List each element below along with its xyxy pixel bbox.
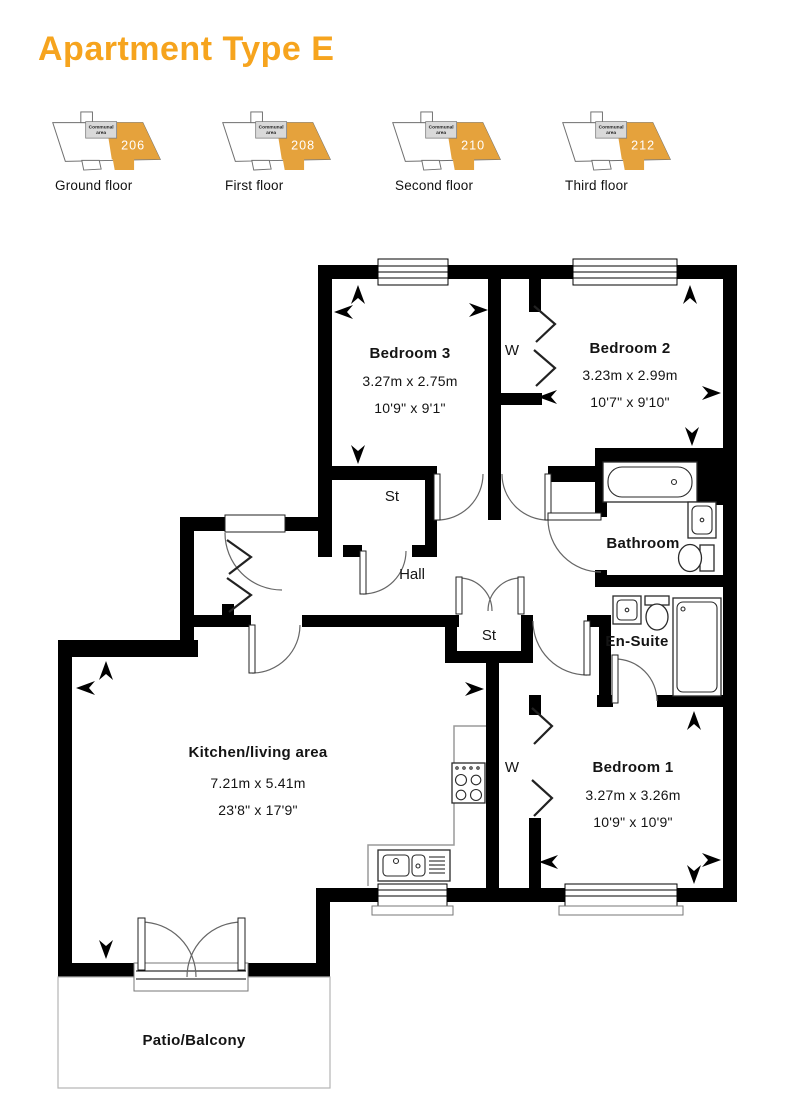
window-bedroom3 — [378, 259, 448, 285]
entry-closet-doors — [227, 540, 251, 612]
dimension-arrows-bedroom2 — [538, 285, 721, 446]
door-bathroom — [548, 513, 601, 572]
wardrobe-doors-bedroom1 — [532, 708, 552, 816]
room-label-kitchen: Kitchen/living area 7.21m x 5.41m 23'8" … — [188, 744, 327, 818]
kitchen-name: Kitchen/living area — [188, 744, 327, 761]
storage2-label: St — [482, 627, 497, 644]
entry-door — [225, 515, 285, 590]
bedroom2-imperial: 10'7" x 9'10" — [590, 394, 669, 410]
hall-label: Hall — [399, 566, 425, 583]
patio-label: Patio/Balcony — [142, 1032, 245, 1049]
window-bedroom1 — [559, 884, 683, 915]
bedroom1-imperial: 10'9" x 10'9" — [593, 814, 672, 830]
bedroom2-name: Bedroom 2 — [589, 340, 670, 357]
ensuite-label: En-Suite — [605, 633, 668, 650]
room-label-bedroom1: Bedroom 1 3.27m x 3.26m 10'9" x 10'9" — [585, 759, 680, 830]
bedroom3-metric: 3.27m x 2.75m — [362, 373, 457, 389]
patio-doors — [134, 918, 248, 991]
kitchen-hob — [452, 763, 485, 803]
bathroom-label: Bathroom — [606, 535, 679, 552]
door-kitchen — [249, 625, 300, 673]
floorplan: Bedroom 3 3.27m x 2.75m 10'9" x 9'1" W B… — [0, 0, 800, 1120]
window-bedroom2 — [573, 259, 677, 285]
bedroom3-name: Bedroom 3 — [369, 345, 450, 362]
wardrobe-bedroom1-label: W — [505, 759, 520, 776]
ensuite-sink — [613, 596, 641, 624]
door-storage2-double — [456, 577, 524, 614]
storage1-label: St — [385, 488, 400, 505]
bedroom2-metric: 3.23m x 2.99m — [582, 367, 677, 383]
kitchen-sink — [378, 850, 450, 881]
kitchen-metric: 7.21m x 5.41m — [210, 775, 305, 791]
wardrobe-bedroom2-label: W — [505, 342, 520, 359]
bathroom-toilet — [679, 545, 715, 572]
kitchen-imperial: 23'8" x 17'9" — [218, 802, 297, 818]
ensuite-shower — [673, 598, 721, 696]
bathroom-sink — [688, 502, 716, 538]
room-label-bedroom3: Bedroom 3 3.27m x 2.75m 10'9" x 9'1" — [362, 345, 457, 416]
ensuite-toilet — [645, 596, 669, 630]
bedroom1-name: Bedroom 1 — [592, 759, 673, 776]
door-bedroom2 — [502, 474, 551, 520]
door-bedroom1-corridor — [533, 621, 590, 675]
bedroom1-metric: 3.27m x 3.26m — [585, 787, 680, 803]
bathtub — [603, 462, 697, 502]
wardrobe-doors-bedroom2 — [534, 306, 555, 386]
window-kitchen — [372, 884, 453, 915]
patio-area — [58, 918, 330, 1088]
door-bedroom3 — [434, 474, 483, 520]
bedroom3-imperial: 10'9" x 9'1" — [374, 400, 445, 416]
room-label-bedroom2: Bedroom 2 3.23m x 2.99m 10'7" x 9'10" — [582, 340, 677, 410]
